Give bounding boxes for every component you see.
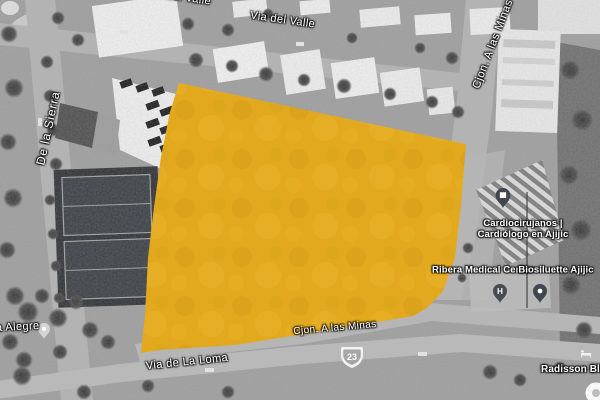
poi-label-biosiluette[interactable]: Biosiluette Ajijic [518, 265, 593, 276]
poi-cardio-line2: Cardiólogo en Ajijic [478, 229, 569, 240]
dot-icon [538, 289, 543, 294]
poi-label-radisson[interactable]: Radisson Blu A [541, 364, 600, 375]
dot-icon [42, 327, 46, 331]
poi-label-cardiocirujanos[interactable]: Cardiocirujanos | Cardiólogo en Ajijic [478, 218, 569, 240]
satellite-map[interactable]: H 23 [0, 0, 600, 400]
street-label-alegre: a Alegre [0, 320, 40, 334]
satellite-canvas: H 23 [0, 0, 600, 400]
poi-cardio-line1: Cardiocirujanos | [478, 218, 569, 229]
route-number: 23 [347, 352, 357, 362]
hospital-icon: H [497, 287, 503, 296]
building-icon [500, 192, 506, 198]
